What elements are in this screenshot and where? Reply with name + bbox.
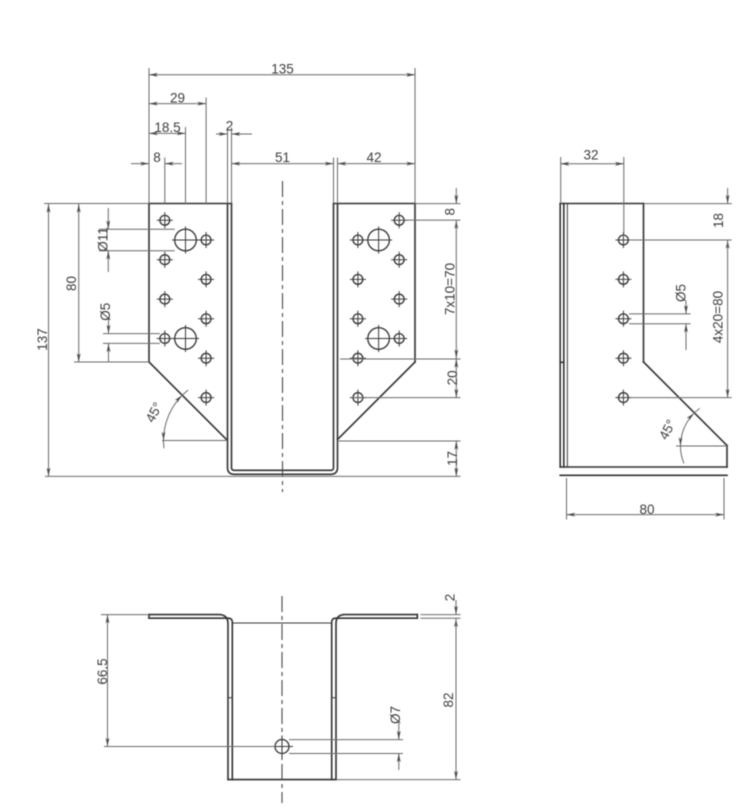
svg-text:Ø5: Ø5 (674, 284, 689, 302)
svg-text:29: 29 (170, 90, 185, 105)
svg-text:82: 82 (441, 692, 456, 707)
svg-text:32: 32 (583, 147, 598, 162)
svg-text:Ø11: Ø11 (96, 227, 111, 252)
svg-text:20: 20 (445, 370, 460, 385)
svg-text:137: 137 (35, 328, 50, 351)
svg-text:18.5: 18.5 (154, 120, 180, 135)
svg-text:18: 18 (711, 213, 726, 228)
svg-text:8: 8 (153, 150, 161, 165)
svg-text:45°: 45° (143, 400, 166, 425)
svg-text:7x10=70: 7x10=70 (442, 263, 457, 315)
svg-text:Ø5: Ø5 (98, 303, 113, 321)
svg-text:66.5: 66.5 (95, 658, 110, 684)
svg-text:45°: 45° (656, 417, 679, 442)
svg-text:8: 8 (442, 208, 457, 216)
svg-text:17: 17 (445, 451, 460, 466)
svg-text:42: 42 (366, 150, 381, 165)
svg-text:135: 135 (271, 62, 294, 77)
svg-text:Ø7: Ø7 (388, 706, 403, 724)
svg-text:80: 80 (64, 276, 79, 291)
svg-text:4x20=80: 4x20=80 (710, 291, 725, 343)
svg-text:2: 2 (226, 119, 234, 134)
svg-text:80: 80 (639, 502, 654, 517)
svg-text:2: 2 (442, 594, 457, 602)
svg-text:51: 51 (275, 150, 290, 165)
